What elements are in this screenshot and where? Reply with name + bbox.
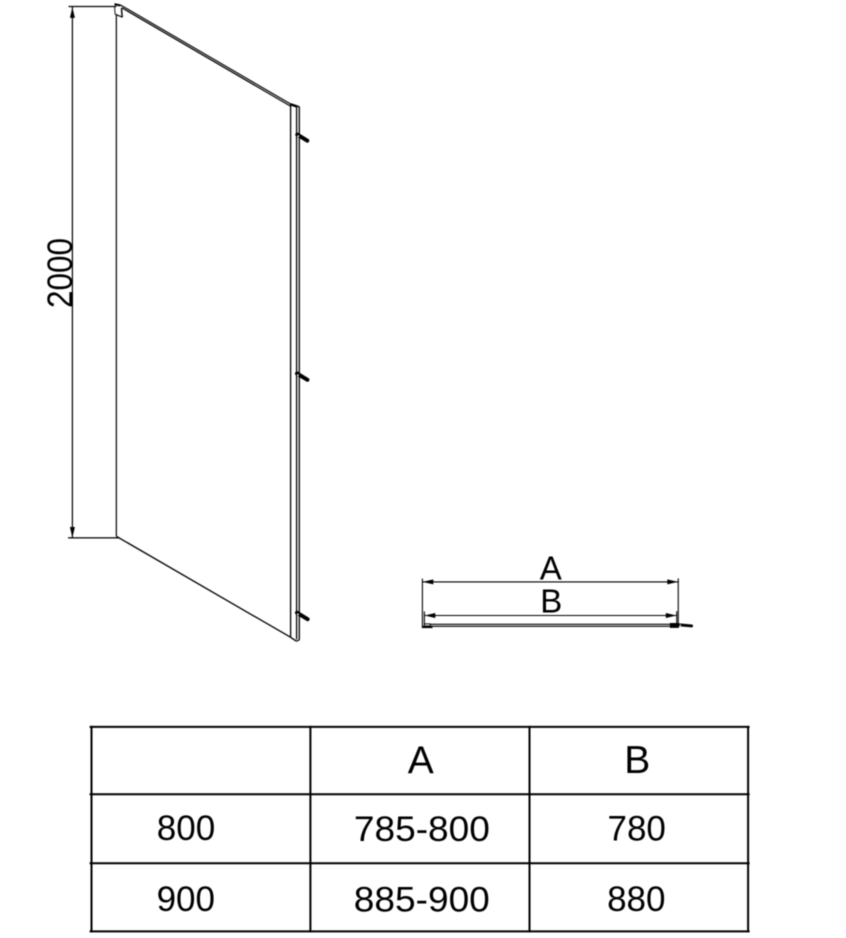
svg-text:B: B xyxy=(540,582,562,619)
svg-text:800: 800 xyxy=(157,809,215,848)
svg-text:900: 900 xyxy=(157,880,215,919)
svg-text:785-800: 785-800 xyxy=(354,810,490,849)
svg-text:A: A xyxy=(540,549,562,586)
svg-text:2000: 2000 xyxy=(41,238,80,308)
svg-text:880: 880 xyxy=(607,880,665,919)
svg-text:885-900: 885-900 xyxy=(354,880,490,919)
svg-text:B: B xyxy=(624,739,650,782)
svg-text:A: A xyxy=(408,739,434,782)
svg-text:780: 780 xyxy=(607,810,665,849)
